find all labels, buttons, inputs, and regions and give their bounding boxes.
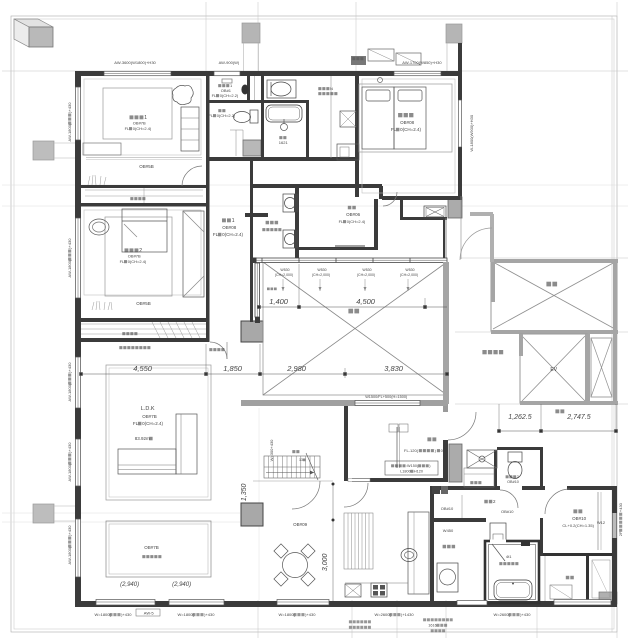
svg-text:3,000: 3,000	[322, 553, 329, 571]
svg-text:AW-1800(: AW-1800(	[67, 383, 72, 401]
svg-text:)+430: )+430	[67, 442, 72, 453]
svg-text:)+430: )+430	[67, 102, 72, 113]
svg-text:AW-1800(: AW-1800(	[67, 463, 72, 481]
svg-text:W=1800(: W=1800(	[95, 612, 112, 617]
svg-text:FL: FL	[133, 421, 139, 426]
svg-text:0(CH=2.4): 0(CH=2.4)	[128, 259, 147, 264]
svg-text:AW-1700(W850)+H30: AW-1700(W850)+H30	[402, 60, 442, 65]
svg-text:OB#10: OB#10	[501, 509, 514, 514]
svg-text:OB#08: OB#08	[400, 120, 415, 125]
svg-text:FL-120(: FL-120(	[404, 448, 419, 453]
svg-text:AW-900(W): AW-900(W)	[219, 60, 240, 65]
svg-text:W=2600(: W=2600(	[375, 612, 392, 617]
svg-text:2,980: 2,980	[286, 364, 307, 373]
svg-text:+430: +430	[618, 502, 623, 512]
svg-text:AW-3600(W1800)+H30: AW-3600(W1800)+H30	[114, 60, 156, 65]
svg-text:1621: 1621	[279, 140, 289, 145]
svg-text:83.92m: 83.92m	[135, 436, 150, 441]
svg-text:W530: W530	[280, 268, 289, 272]
svg-text:W=1800(: W=1800(	[178, 612, 195, 617]
svg-text:OB#7B: OB#7B	[133, 121, 146, 126]
svg-text:AW-1800(: AW-1800(	[67, 546, 72, 564]
svg-text:OB#10: OB#10	[507, 480, 519, 484]
svg-text:L1800: L1800	[400, 470, 411, 474]
svg-text:AW-1800(: AW-1800(	[67, 259, 72, 277]
svg-text:AW-5: AW-5	[144, 611, 155, 616]
svg-text:(2,940): (2,940)	[172, 582, 191, 588]
svg-text:1,850: 1,850	[223, 364, 243, 373]
svg-text:1,350: 1,350	[241, 483, 248, 501]
svg-text:(2,940): (2,940)	[120, 582, 139, 588]
svg-text:W-1800(W900)+H30: W-1800(W900)+H30	[469, 114, 474, 151]
svg-text:W530: W530	[362, 268, 371, 272]
svg-text:W530: W530	[405, 268, 414, 272]
svg-text:0(CH=2.4): 0(CH=2.4)	[133, 126, 152, 131]
svg-text:3,830: 3,830	[384, 364, 404, 373]
svg-text:FL: FL	[391, 127, 397, 132]
svg-text:W450: W450	[443, 528, 454, 533]
svg-text:1616: 1616	[428, 624, 436, 628]
svg-text:)+430: )+430	[67, 238, 72, 249]
svg-text:L.D.K: L.D.K	[141, 406, 155, 412]
svg-text:OB#5B: OB#5B	[139, 164, 154, 169]
svg-text:1,262.5: 1,262.5	[508, 414, 531, 421]
svg-text:OB#5B: OB#5B	[136, 301, 151, 306]
svg-text:OB#10: OB#10	[441, 506, 454, 511]
svg-text:OB#09: OB#09	[293, 522, 308, 527]
svg-text:OB#7B: OB#7B	[128, 254, 141, 259]
svg-text:)+430: )+430	[67, 525, 72, 536]
svg-text:EV: EV	[550, 367, 557, 373]
svg-text:W=2600(: W=2600(	[494, 612, 511, 617]
svg-text:)+430: )+430	[204, 612, 215, 617]
svg-text:)+430: )+430	[121, 612, 132, 617]
svg-text:CL+0.2(CH=1.35): CL+0.2(CH=1.35)	[562, 523, 594, 528]
svg-text:FL: FL	[213, 232, 219, 237]
svg-text:OB#7B: OB#7B	[142, 414, 157, 419]
svg-text:2,747.5: 2,747.5	[566, 414, 590, 421]
svg-text:)+1430: )+1430	[401, 612, 414, 617]
svg-text:OB#10: OB#10	[572, 516, 587, 521]
svg-text:4,550: 4,550	[133, 364, 153, 373]
svg-text:W12: W12	[597, 520, 606, 525]
svg-text:(CH=2,000): (CH=2,000)	[312, 273, 330, 277]
svg-text:0(CH=2.2): 0(CH=2.2)	[220, 93, 239, 98]
svg-text:W=300+430: W=300+430	[269, 439, 274, 462]
svg-text:0(CH=2.4): 0(CH=2.4)	[347, 219, 366, 224]
svg-text:13: 13	[299, 458, 303, 462]
svg-text:OB#08: OB#08	[222, 225, 237, 230]
svg-text:2: 2	[517, 475, 519, 479]
svg-text:W=1800(: W=1800(	[279, 612, 296, 617]
svg-text:AW-1800(: AW-1800(	[67, 123, 72, 141]
svg-text:W530: W530	[317, 268, 326, 272]
svg-text:4t1: 4t1	[506, 554, 512, 559]
svg-text:)+430: )+430	[520, 612, 531, 617]
svg-text:)+430: )+430	[305, 612, 316, 617]
svg-text:H120: H120	[414, 470, 423, 474]
svg-text:0(CH=2.4): 0(CH=2.4)	[222, 232, 243, 237]
svg-text:4,500: 4,500	[356, 297, 376, 306]
svg-text:0(CH=2.4): 0(CH=2.4)	[142, 421, 163, 426]
svg-text:N: N	[330, 86, 333, 91]
svg-text::W150(: :W150(	[406, 464, 419, 468]
svg-text:1: 1	[232, 218, 235, 224]
svg-text:(CH=2,000): (CH=2,000)	[275, 273, 293, 277]
svg-text:(CH=2,000): (CH=2,000)	[357, 273, 375, 277]
svg-text:OB#06: OB#06	[346, 212, 361, 217]
svg-text:0(CH=2.4): 0(CH=2.4)	[400, 127, 421, 132]
svg-text:)+430: )+430	[67, 362, 72, 373]
svg-text:W1500/FL+500(H=1500): W1500/FL+500(H=1500)	[365, 395, 408, 399]
svg-text:1,400: 1,400	[269, 297, 289, 306]
svg-text:0(CH=2.2): 0(CH=2.2)	[217, 113, 236, 118]
svg-text:OB#7B: OB#7B	[144, 545, 159, 550]
svg-text:(CH=2,000): (CH=2,000)	[400, 273, 418, 277]
